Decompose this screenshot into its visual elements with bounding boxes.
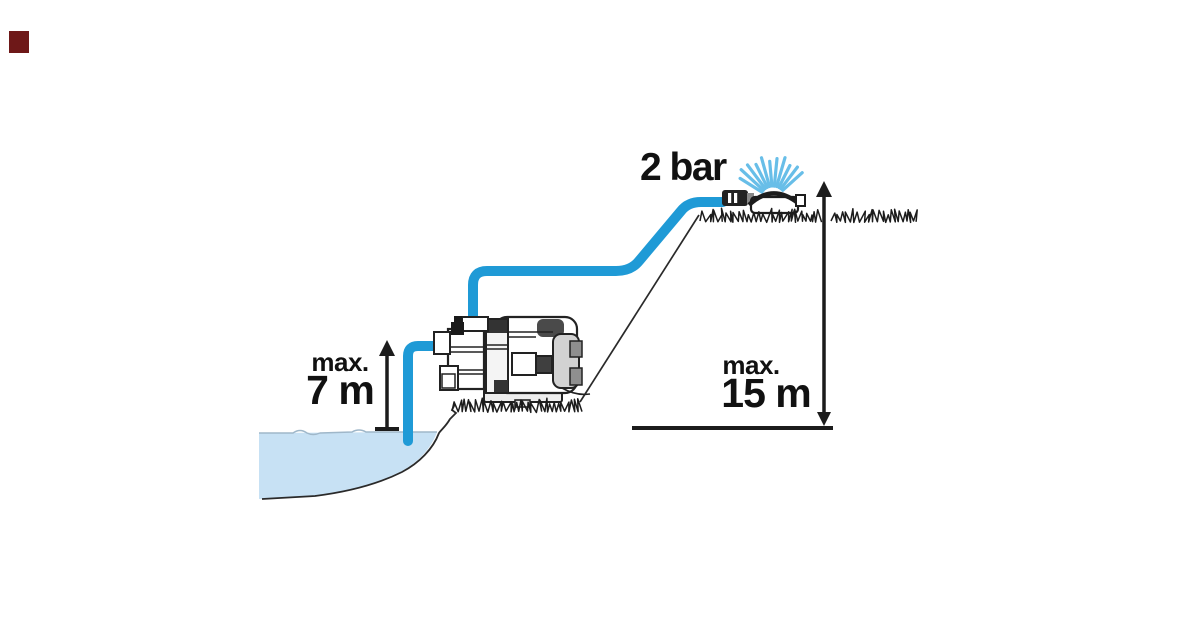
sprinkler-end-cap — [796, 195, 805, 206]
sprinkler-illustration — [722, 158, 805, 213]
garden-pump-illustration — [434, 316, 590, 407]
diagram-canvas — [0, 0, 1200, 630]
suction-height-value: 7 m — [290, 370, 390, 411]
coupler-rib — [728, 193, 731, 203]
slope-line — [580, 215, 699, 402]
delivery-hose — [473, 202, 723, 318]
pond-water — [259, 404, 456, 499]
pressure-label: 2 bar — [640, 148, 726, 187]
delivery-height-value: 15 m — [706, 373, 826, 414]
water-spray-icon — [740, 158, 802, 192]
grass-top-right — [831, 209, 917, 223]
pump-diagram: 2 bar max. 7 m max. 15 m — [0, 0, 1200, 630]
suction-hose — [408, 346, 436, 441]
coupler-rib — [734, 193, 737, 203]
